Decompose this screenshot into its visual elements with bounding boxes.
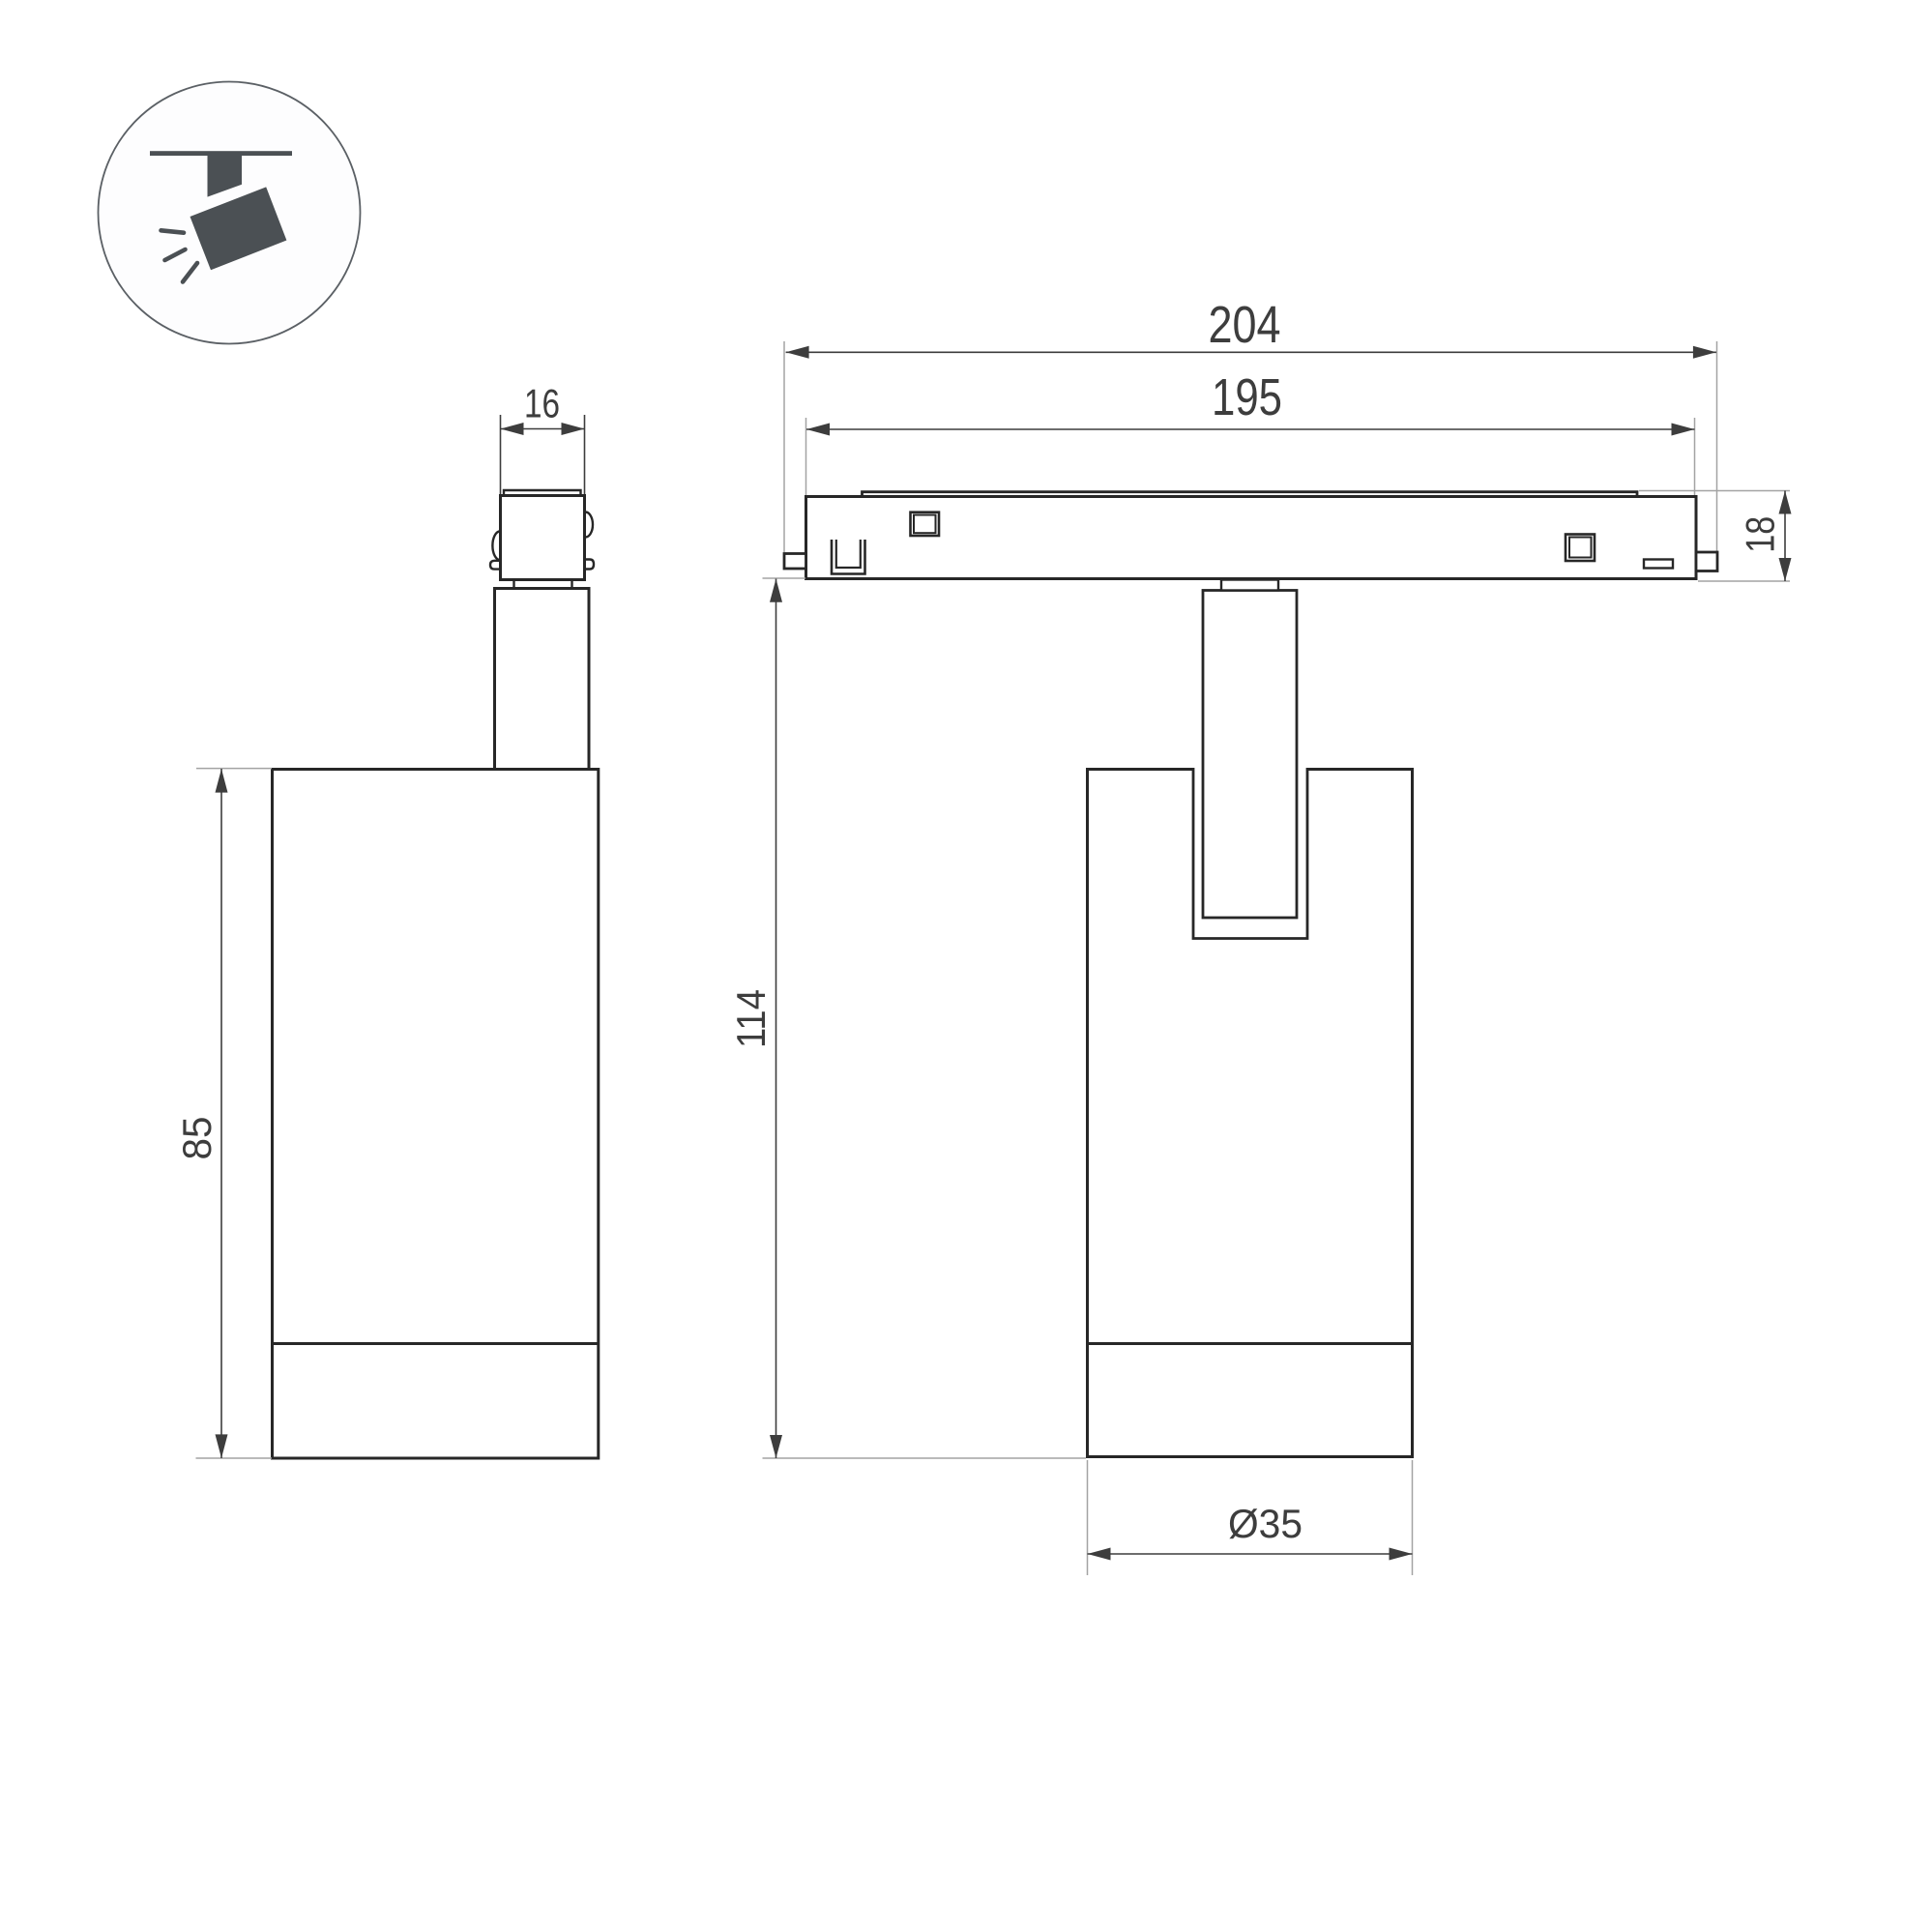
svg-text:85: 85 <box>174 1117 220 1160</box>
svg-text:16: 16 <box>524 380 560 425</box>
svg-text:18: 18 <box>1738 516 1783 553</box>
svg-text:Ø35: Ø35 <box>1228 1501 1303 1546</box>
svg-text:204: 204 <box>1209 296 1281 354</box>
svg-text:195: 195 <box>1212 368 1282 426</box>
svg-text:114: 114 <box>728 989 774 1048</box>
